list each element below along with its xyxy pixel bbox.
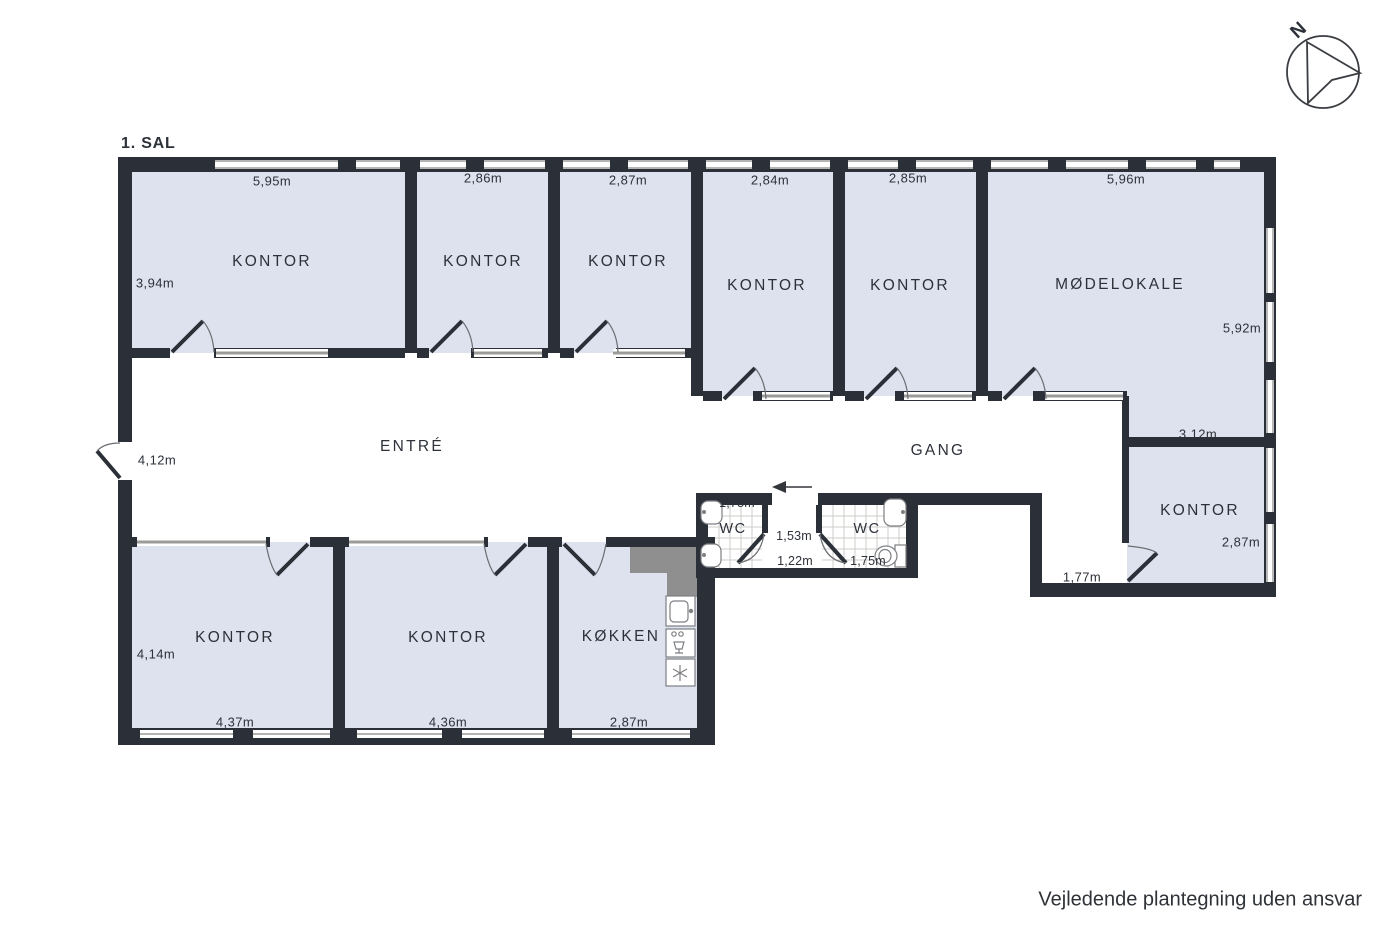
floor-plan-canvas: 1. SAL KONTOR 5,95m 3,94m KONTOR 2,86m K…	[0, 0, 1400, 933]
dishwasher	[666, 629, 695, 657]
room-label-gang: GANG	[911, 442, 966, 460]
disclaimer-text: Vejledende plantegning uden ansvar	[1038, 889, 1362, 912]
room-label-wc-1: WC	[719, 521, 746, 537]
floor-plan-drawing	[0, 0, 1400, 933]
room-label-kontor-7: KONTOR	[195, 629, 275, 647]
dim-label: 2,87m	[1222, 535, 1260, 550]
dim-label: 4,14m	[137, 647, 175, 662]
dim-label: 1,78m	[719, 496, 755, 510]
room-label-entre: ENTRÉ	[380, 438, 444, 456]
dim-label: 4,37m	[216, 715, 254, 730]
compass-circle	[1287, 36, 1359, 108]
dim-label: 3,94m	[136, 276, 174, 291]
room-label-kontor-8: KONTOR	[408, 629, 488, 647]
dim-label: 5,95m	[253, 174, 291, 189]
room-label-kontor-2: KONTOR	[443, 253, 523, 271]
kitchen-sink	[666, 596, 695, 626]
entry-arrow	[772, 481, 812, 493]
floor-title: 1. SAL	[121, 135, 176, 153]
room-label-kontor-5: KONTOR	[870, 277, 950, 295]
room-label-koekken: KØKKEN	[582, 628, 660, 646]
dim-label: 4,36m	[429, 715, 467, 730]
room-label-wc-2: WC	[853, 521, 880, 537]
room-label-kontor-1: KONTOR	[232, 253, 312, 271]
dim-label: 4,12m	[138, 453, 176, 468]
dim-label: 1,75m	[850, 554, 886, 568]
windows-right-wall	[1266, 228, 1274, 582]
compass	[1287, 36, 1360, 108]
fridge	[666, 659, 695, 686]
room-label-kontor-6: KONTOR	[1160, 502, 1240, 520]
dim-label: 1,53m	[776, 529, 812, 543]
room-label-kontor-4: KONTOR	[727, 277, 807, 295]
dim-label: 5,92m	[1223, 321, 1261, 336]
windows-bottom-wall	[140, 730, 690, 738]
wc-sink-right	[884, 499, 906, 526]
dim-label: 1,77m	[1063, 570, 1101, 585]
dim-label: 3,12m	[1179, 427, 1217, 442]
dim-label: 2,86m	[464, 171, 502, 186]
dim-label: 2,87m	[609, 173, 647, 188]
dim-label: 1,22m	[777, 554, 813, 568]
dim-label: 2,87m	[610, 715, 648, 730]
dim-label: 2,85m	[889, 171, 927, 186]
dim-label: 2,84m	[751, 173, 789, 188]
room-label-moedelokale: MØDELOKALE	[1055, 276, 1185, 294]
dim-label: 5,96m	[1107, 172, 1145, 187]
room-label-kontor-3: KONTOR	[588, 253, 668, 271]
